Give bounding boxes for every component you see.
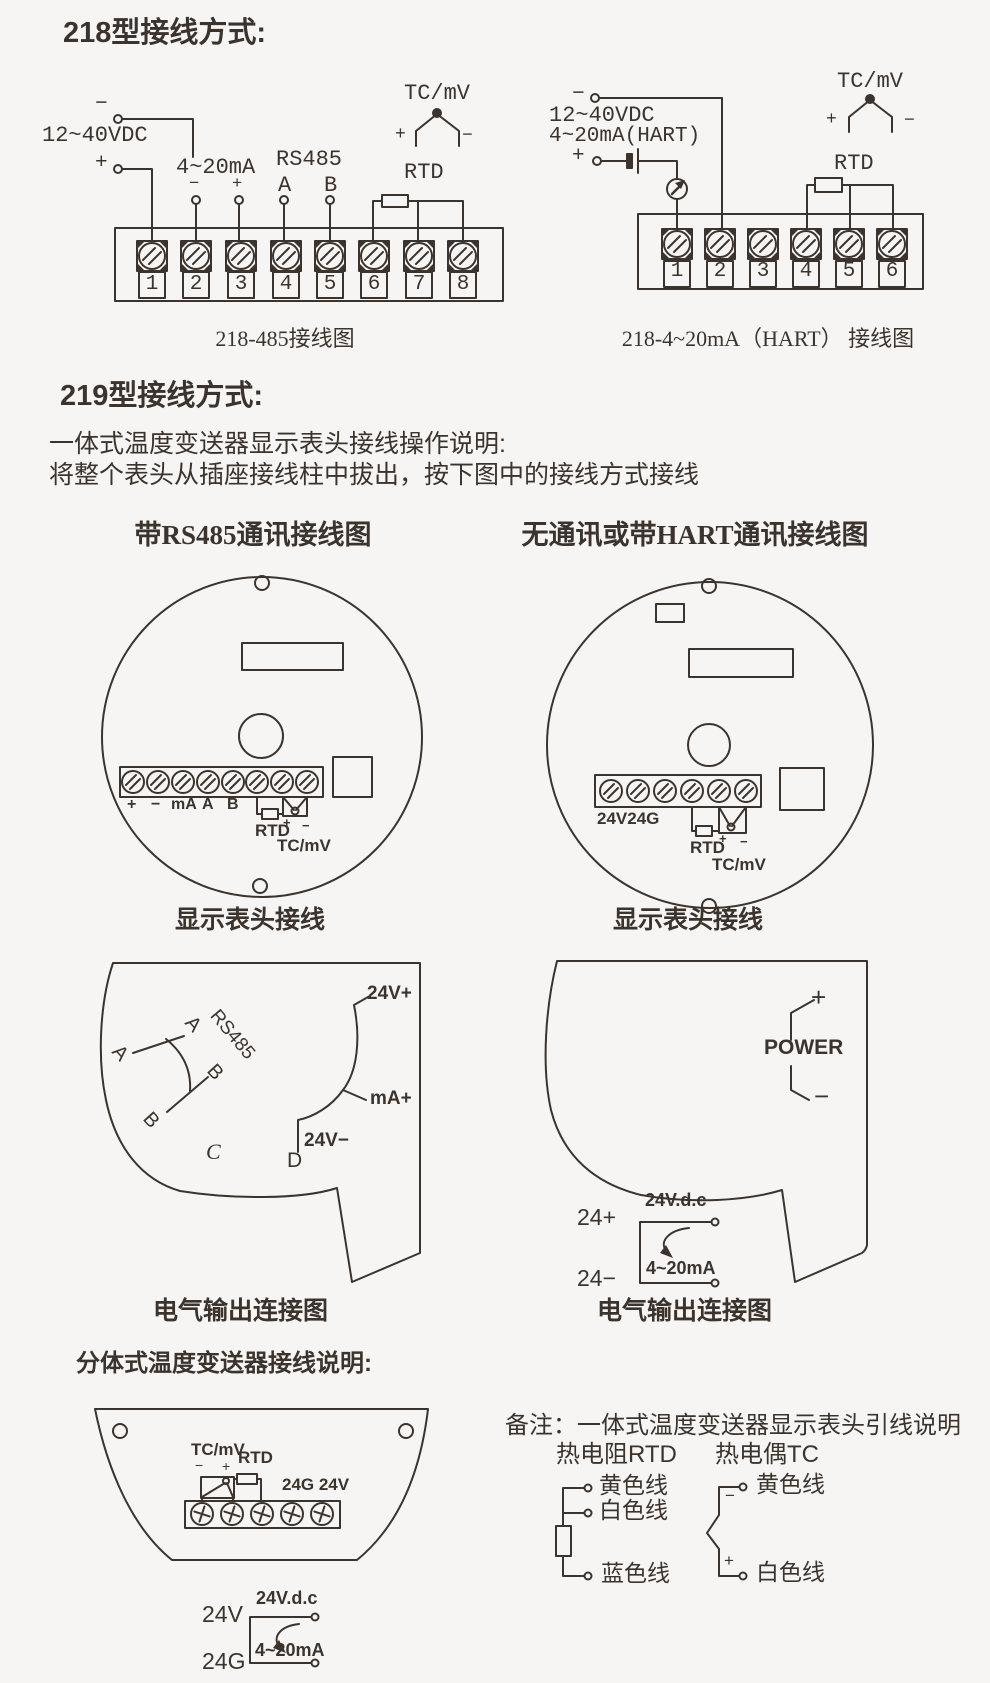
218l-terminal-number: 5 — [317, 274, 343, 296]
218l-terminal-number: 1 — [139, 274, 165, 296]
218l-plus: + — [95, 153, 108, 175]
outr-24-minus: 24− — [577, 1266, 616, 1290]
218l-terminal-number: 4 — [273, 274, 299, 296]
outl-24v-minus: 24V− — [304, 1131, 349, 1151]
split-24g: 24G — [202, 1649, 245, 1673]
note-title: 备注：一体式温度变送器显示表头引线说明 — [505, 1413, 961, 1438]
outr-caption: 电气输出连接图 — [582, 1298, 787, 1324]
218r-terminal-number: 4 — [793, 261, 819, 283]
218l-ma-minus: − — [189, 176, 199, 194]
headl-a: A — [202, 797, 214, 814]
section-219-title: 219型接线方式: — [60, 381, 263, 411]
display-head-rs485 — [102, 576, 422, 897]
headr-24v24g: 24V24G — [597, 810, 659, 828]
headl-rtd-minus: − — [302, 819, 310, 833]
headr-rtd-plus: + — [719, 832, 727, 846]
note-rtd-yellow-wire: 黄色线 — [599, 1473, 668, 1497]
218l-power-range: 12~40VDC — [42, 124, 148, 147]
split-24vdc: 24V.d.c — [256, 1589, 317, 1608]
218l-terminal-number: 6 — [361, 274, 387, 296]
218r-terminal-number: 3 — [750, 261, 776, 283]
section-218-title: 218型接线方式: — [63, 18, 266, 48]
note-tc-white-wire: 白色线 — [756, 1560, 825, 1584]
218r-terminal-number: 1 — [664, 261, 690, 283]
headl-caption: 显示表头接线 — [150, 907, 350, 933]
218l-rs485-b: B — [324, 174, 337, 197]
headl-ma: mA — [171, 797, 197, 814]
split-rtd: RTD — [238, 1449, 273, 1467]
headl-rtd-plus: + — [283, 816, 291, 830]
218r-terminal-number: 6 — [879, 261, 905, 283]
outr-minus: − — [814, 1083, 829, 1110]
218l-ma-label: 4~20mA — [176, 156, 255, 179]
headl-tcmv: TC/mV — [277, 837, 331, 855]
note-rtd-blue-wire: 蓝色线 — [601, 1561, 670, 1585]
note-tc-yellow-wire: 黄色线 — [756, 1472, 825, 1496]
outr-plus: + — [811, 984, 826, 1011]
218l-caption: 218-485接线图 — [185, 327, 385, 350]
diagram-218-485 — [114, 109, 503, 301]
split-plus: + — [222, 1459, 230, 1474]
218r-terminal-number: 2 — [707, 261, 733, 283]
218l-minus: − — [95, 94, 108, 116]
note-tc-plus: + — [724, 1552, 734, 1570]
218l-tc-minus: − — [462, 127, 473, 146]
218l-terminal-number: 7 — [406, 274, 432, 296]
outr-power: POWER — [764, 1037, 843, 1059]
headl-b: B — [227, 797, 239, 814]
headr-caption: 显示表头接线 — [588, 907, 788, 933]
218l-rs485-a: A — [278, 174, 291, 197]
head-rs485-header: 带RS485通讯接线图 — [103, 521, 403, 549]
split-24v: 24V — [202, 1602, 243, 1626]
219-desc-line2: 将整个表头从插座接线柱中拔出，按下图中的接线方式接线 — [49, 462, 699, 488]
218r-rtd-label: RTD — [834, 152, 874, 175]
218r-power-range: 12~40VDC — [549, 104, 655, 127]
wiring-instructions-page: 218型接线方式: − 12~40VDC + 4~20mA − + RS485 … — [0, 0, 990, 1683]
218l-tcmv-label: TC/mV — [404, 82, 470, 105]
headr-tcmv: TC/mV — [712, 856, 766, 874]
218r-caption: 218-4~20mA（HART） 接线图 — [578, 327, 958, 350]
218r-tc-minus: − — [904, 112, 915, 131]
headr-rtd-minus: − — [740, 835, 748, 849]
outr-420ma: 4~20mA — [646, 1259, 716, 1278]
headl-minus: − — [151, 797, 160, 814]
head-hart-header: 无通讯或带HART通讯接线图 — [495, 521, 895, 549]
outr-24-plus: 24+ — [577, 1205, 616, 1229]
split-420ma: 4~20mA — [255, 1641, 325, 1660]
218r-terminal-number: 5 — [836, 261, 862, 283]
218r-tc-plus: + — [826, 111, 837, 130]
outl-caption: 电气输出连接图 — [138, 1298, 343, 1324]
split-minus: − — [195, 1458, 203, 1473]
outl-24v-plus: 24V+ — [367, 984, 412, 1004]
display-head-hart — [547, 579, 873, 913]
headl-plus: + — [127, 797, 136, 814]
218r-tcmv-label: TC/mV — [837, 70, 903, 93]
218l-terminal-number: 3 — [228, 274, 254, 296]
note-rtd-head: 热电阻RTD — [556, 1442, 677, 1467]
218l-ma-plus: + — [232, 176, 242, 194]
outl-ma-plus: mA+ — [370, 1089, 412, 1109]
note-tc-minus: − — [725, 1487, 735, 1505]
218l-rtd-label: RTD — [404, 161, 444, 184]
split-title: 分体式温度变送器接线说明: — [76, 1351, 372, 1376]
218r-plus: + — [572, 146, 585, 168]
218l-rs485-label: RS485 — [276, 148, 342, 171]
note-rtd-white-wire: 白色线 — [599, 1498, 668, 1522]
219-desc-line1: 一体式温度变送器显示表头接线操作说明: — [49, 431, 506, 457]
218l-terminal-number: 8 — [450, 274, 476, 296]
split-24g24v: 24G 24V — [282, 1476, 349, 1494]
outr-24vdc: 24V.d.c — [645, 1191, 706, 1210]
outl-c: C — [206, 1140, 221, 1163]
218l-terminal-number: 2 — [183, 274, 209, 296]
218l-tc-plus: + — [395, 126, 406, 145]
note-tc-head: 热电偶TC — [715, 1442, 819, 1467]
outl-d: D — [287, 1150, 302, 1172]
